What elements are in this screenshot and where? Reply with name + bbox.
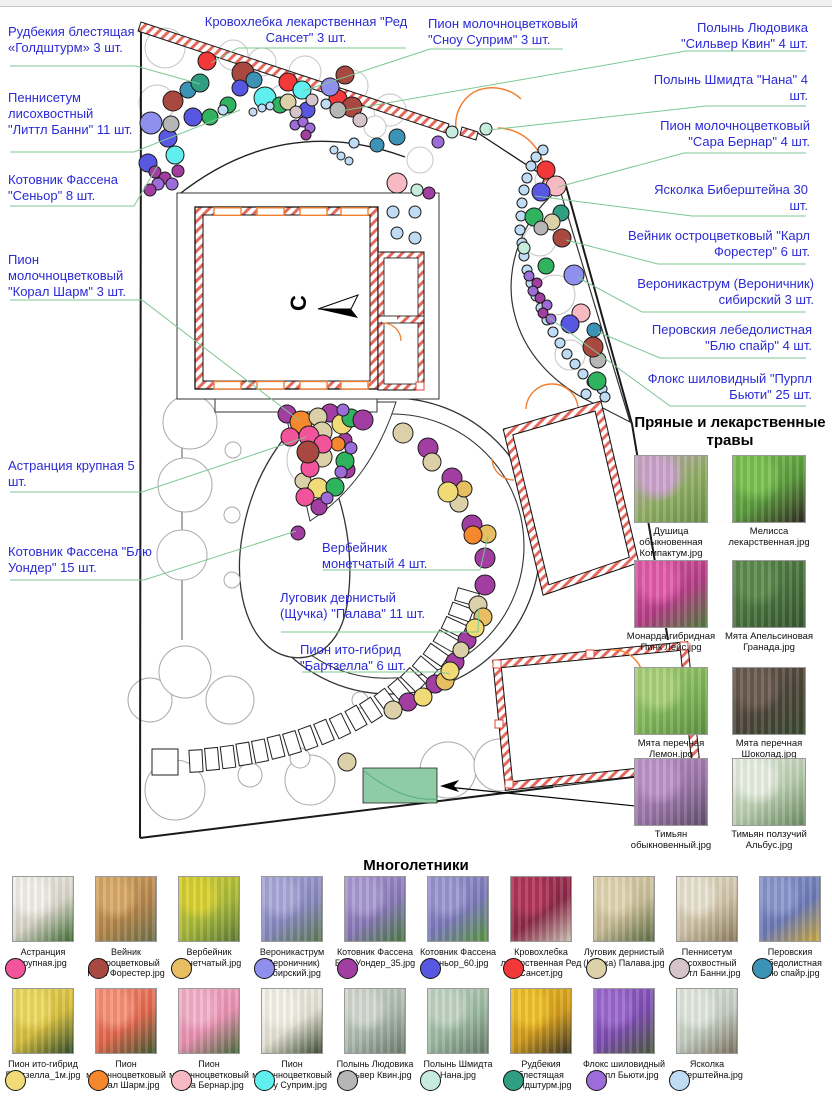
plant-dot [166,146,184,164]
herb-caption: Монарда гибридная Пинк Лейс.jpg [621,631,721,653]
stepping-stone [220,745,236,768]
perennial-photo [510,876,572,942]
plant-dot [480,123,492,135]
perennial-photo [12,988,74,1054]
stepping-stone [283,731,302,756]
plant-dot [163,91,183,111]
tree-circle [158,458,212,512]
plant-dot [349,138,359,148]
house: С [177,193,439,412]
plant-dot [191,74,209,92]
plant-dot [441,662,459,680]
plant-dot [306,94,318,106]
plant-dot [370,138,384,152]
plant-dot [561,315,579,333]
plant-dot [330,102,346,118]
leader-line-c1 [10,66,200,84]
plant-dot [409,232,421,244]
legend-dot [254,958,275,979]
callout-c10: Полынь Шмидта "Нана" 4 шт. [646,72,808,104]
plant-dot [266,102,274,110]
stepping-stone [236,742,252,766]
perennial-photo [178,988,240,1054]
stepping-stone [205,747,220,770]
plant-dot [570,359,580,369]
plant-dot [290,106,302,118]
plant-dot [519,185,529,195]
plant-dot [518,242,530,254]
herb-caption: Душица обыкновенная Компактум.jpg [621,526,721,559]
callout-c7: Кровохлебка лекарственная "Ред Сансет" 3… [200,14,412,46]
plant-dot [140,112,162,134]
plant-dot [291,526,305,540]
arch-path [177,141,405,196]
herb-photo [732,667,806,735]
legend-dot [669,958,690,979]
perennial-photo [12,876,74,942]
herb-caption: Мята Апельсиновая Гранада.jpg [719,631,819,653]
plant-dot [296,488,314,506]
plant-dot [246,72,262,88]
herb-photo [732,455,806,523]
plant-dot [524,271,534,281]
tree-circle [206,676,254,724]
tree-circle [224,507,240,523]
plant-dot [548,327,558,337]
plant-dot [534,221,548,235]
callout-c2: Пеннисетум лисохвостный "Литтл Банни" 11… [8,90,136,138]
plant-dot [249,108,257,116]
perennial-photo [593,876,655,942]
plant-mass-circle [407,147,433,173]
compass-letter: С [286,295,311,311]
herb-photo [634,560,708,628]
herb-photo [634,667,708,735]
herbs-title: Пряные и лекарственные травы [628,414,832,450]
plant-dot [281,428,299,446]
plant-dot [538,258,554,274]
legend-dot [337,1070,358,1091]
callout-c14: Вероникаструм (Вероничник) сибирский 3 ш… [616,276,814,308]
plant-dot [202,109,218,125]
plant-dot [438,482,458,502]
plant-dot [466,619,484,637]
plant-dot [335,466,347,478]
plant-dot [475,575,495,595]
tree-circle [225,442,241,458]
legend-dot [171,1070,192,1091]
callout-c16: Флокс шиловидный "Пурпл Бьюти" 25 шт. [644,371,812,403]
perennial-photo [427,988,489,1054]
perennial-photo [344,876,406,942]
plant-dot [464,526,482,544]
legend-dot [337,958,358,979]
plant-dot [353,410,373,430]
perennial-photo [676,876,738,942]
callout-c4: Пион молочноцветковый "Корал Шарм" 3 шт. [8,252,144,300]
plant-dot [532,183,550,201]
herb-caption: Мята перечная Шоколад.jpg [719,738,819,760]
callout-c9: Полынь Людовика "Сильвер Квин" 4 шт. [646,20,808,52]
callout-c6: Котовник Фассена "Блю Уондер" 15 шт. [8,544,166,576]
perennial-photo [95,988,157,1054]
herb-caption: Мелисса лекарственная.jpg [719,526,819,548]
tree-circle [163,395,217,449]
plant-dot [384,701,402,719]
plant-dot [337,152,345,160]
plant-dot [423,453,441,471]
plant-dot [387,173,407,193]
plant-dot [515,225,525,235]
callout-c3: Котовник Фассена "Сеньор" 8 шт. [8,172,138,204]
legend-dot [171,958,192,979]
plant-dot [409,206,421,218]
legend-dot [254,1070,275,1091]
herb-caption: Тимьян обыкновенный.jpg [621,829,721,851]
perennial-photo [261,988,323,1054]
plant-dot [345,442,357,454]
perennial-photo [759,876,821,942]
plant-dot [330,146,338,154]
perennial-photo [178,876,240,942]
legend-dot [752,958,773,979]
plant-dot [184,108,202,126]
lawn-rectangle [363,768,437,803]
legend-dot [5,1070,26,1091]
herb-caption: Мята перечная Лемон.jpg [621,738,721,760]
legend-dot [5,958,26,979]
plant-dot [321,78,339,96]
plant-dot [321,492,333,504]
stepping-stone [267,735,285,759]
herb-caption: Тимьян ползучий Альбус.jpg [719,829,819,851]
herb-photo [732,560,806,628]
plant-dot [564,265,584,285]
tree-circle [224,572,240,588]
plant-dot [555,338,565,348]
callout-c8: Пион молочноцветковый "Сноу Суприм" 3 шт… [428,16,580,48]
plant-dot [583,337,603,357]
callout-c11: Пион молочноцветковый "Сара Бернар" 4 шт… [643,118,810,150]
callout-c12: Ясколка Биберштейна 30 шт. [646,182,808,214]
building-1 [492,384,634,590]
plant-dot [517,198,527,208]
plant-dot [258,104,266,112]
perennials-title: Многолетники [0,857,832,875]
perennial-photo [95,876,157,942]
legend-dot [420,958,441,979]
callout-c5: Астранция крупная 5 шт. [8,458,148,490]
legend-dot [88,958,109,979]
plant-dot [446,126,458,138]
legend-dot [420,1070,441,1091]
perennial-photo [676,988,738,1054]
callout-c13: Вейник остроцветковый "Карл Форестер" 6 … [628,228,810,260]
perennial-photo [344,988,406,1054]
plant-dot [600,392,610,402]
plant-dot [423,187,435,199]
plant-dot [456,481,472,497]
plant-dot [345,157,353,165]
plant-dot [297,441,319,463]
plant-dot [553,229,571,247]
callout-c1: Рудбекия блестящая «Голдштурм» 3 шт. [8,24,138,56]
plant-dot [538,145,548,155]
legend-dot [88,1070,109,1091]
legend-dot [669,1070,690,1091]
plant-dot [475,548,495,568]
plant-dot [321,99,331,109]
stepping-stone [298,725,318,750]
plant-dot [414,688,432,706]
plant-dot [163,116,179,132]
plant-dot [578,369,588,379]
tree-circle [238,763,262,787]
plant-dot [172,165,184,177]
legend-dot [503,1070,524,1091]
herb-photo [634,455,708,523]
plant-dot [562,349,572,359]
perennial-photo [593,988,655,1054]
perennial-photo [427,876,489,942]
plant-dot [389,129,405,145]
legend-dot [586,958,607,979]
plant-dot [581,389,591,399]
herb-photo [634,758,708,826]
herb-photo [732,758,806,826]
stepping-stone [252,739,269,763]
plant-dot [301,130,311,140]
plant-dot [387,206,399,218]
plant-dot [337,404,349,416]
plant-dot [522,173,532,183]
garden-plan-page: С [0,0,832,1114]
plant-dot [411,184,423,196]
plant-dot [516,211,526,221]
plant-dot [393,423,413,443]
plant-dot [588,372,606,390]
plant-dot [353,113,367,127]
callout-c17: Вербейник монетчатый 4 шт. [322,540,450,572]
callout-c18: Луговик дернистый (Щучка) "Палава" 11 шт… [280,590,438,622]
legend-dot [503,958,524,979]
perennial-photo [510,988,572,1054]
plant-dot [391,227,403,239]
plant-dot [232,80,248,96]
stepping-stone [189,750,203,773]
plant-dot [331,437,345,451]
legend-dot [586,1070,607,1091]
plant-dot [587,323,601,337]
plant-dot [198,52,216,70]
plant-dot [338,753,356,771]
callout-c19: Пион ито-гибрид "Бартзелла" 6 шт. [300,642,438,674]
plant-dot [218,105,228,115]
callout-c15: Перовския лебедолистная "Блю спайр" 4 шт… [638,322,812,354]
perennial-photo [261,876,323,942]
plant-dot [453,642,469,658]
tree-circle [159,646,211,698]
plant-dot [432,136,444,148]
plant-dot [526,161,536,171]
plant-dot [166,178,178,190]
